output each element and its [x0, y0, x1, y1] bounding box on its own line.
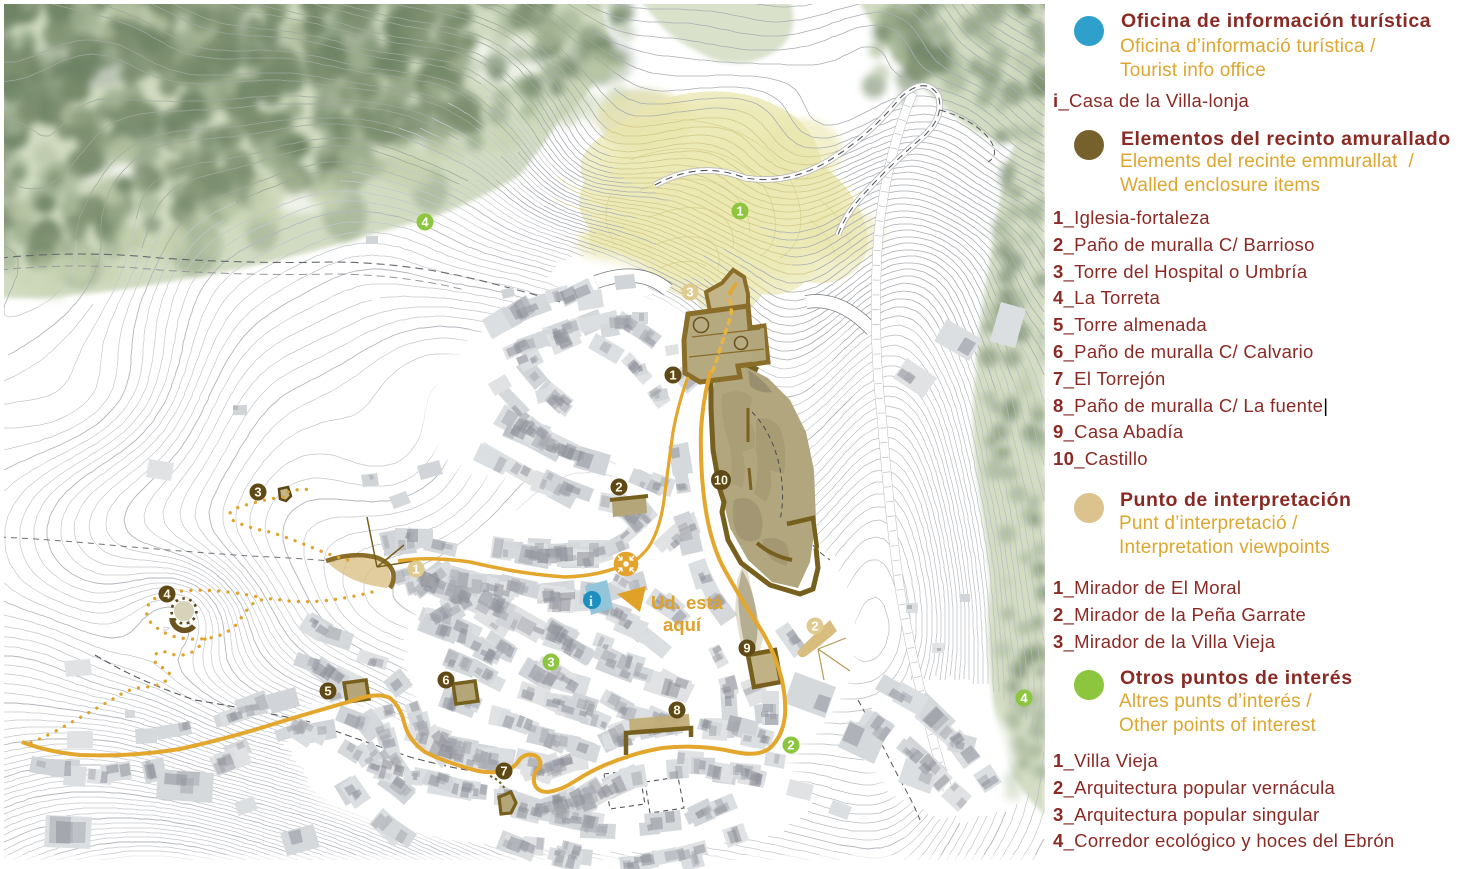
svg-text:8: 8 [673, 703, 680, 718]
svg-text:4: 4 [421, 215, 429, 230]
svg-text:1: 1 [736, 204, 743, 219]
svg-text:3: 3 [547, 655, 554, 670]
svg-text:2: 2 [787, 738, 794, 753]
svg-text:3: 3 [686, 285, 693, 300]
svg-text:2: 2 [811, 619, 818, 634]
svg-text:4: 4 [163, 587, 171, 602]
svg-text:5: 5 [324, 684, 331, 699]
svg-text:i: i [589, 594, 593, 610]
svg-text:3: 3 [254, 485, 261, 500]
svg-text:aquí: aquí [663, 614, 702, 635]
svg-text:6: 6 [442, 673, 449, 688]
svg-text:4: 4 [1020, 691, 1028, 706]
svg-text:2: 2 [615, 480, 622, 495]
svg-text:Ud. está: Ud. está [651, 592, 724, 613]
svg-text:7: 7 [500, 764, 507, 779]
svg-text:1: 1 [669, 368, 676, 383]
svg-text:9: 9 [743, 641, 750, 656]
svg-text:10: 10 [714, 473, 728, 487]
svg-text:1: 1 [412, 562, 419, 577]
